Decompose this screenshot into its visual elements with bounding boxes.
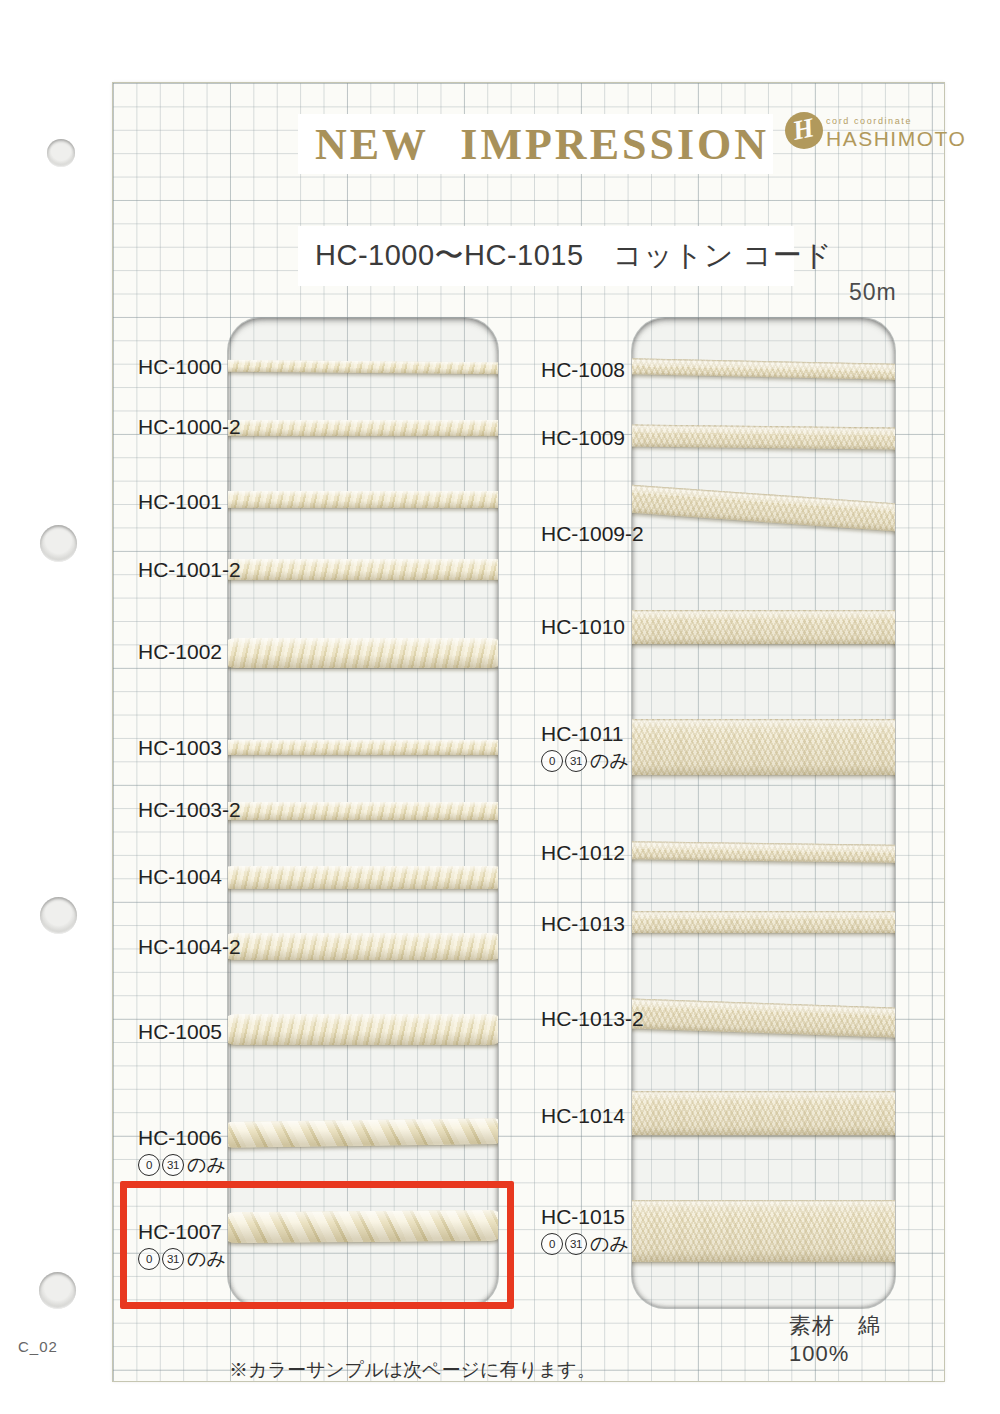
- sample-label-hc-1010: HC-1010: [541, 614, 625, 640]
- sample-id: HC-1005: [138, 1019, 222, 1045]
- page-title: NEW IMPRESSION: [298, 119, 769, 170]
- material-label: 素材 綿 100%: [789, 1311, 944, 1367]
- sample-label-hc-1014: HC-1014: [541, 1103, 625, 1129]
- sample-label-hc-1009: HC-1009: [541, 425, 625, 451]
- sample-id: HC-1013-2: [541, 1006, 644, 1032]
- cord-sample-hc-1014: [631, 1091, 896, 1135]
- cord-sample-hc-1000-2: [227, 420, 499, 436]
- sample-label-hc-1013-2: HC-1013-2: [541, 1006, 644, 1032]
- sample-label-hc-1011: HC-1011031のみ: [541, 721, 629, 774]
- sample-id: HC-1003-2: [138, 797, 241, 823]
- cord-sample-hc-1013: [631, 911, 896, 933]
- circled-number: 31: [162, 1154, 184, 1176]
- cord-sample-hc-1000: [227, 360, 499, 374]
- cord-sample-hc-1001-2: [227, 559, 499, 580]
- logo-company: HASHIMOTO: [826, 127, 966, 151]
- cord-sample-hc-1002: [227, 638, 499, 668]
- cord-sample-hc-1001: [227, 491, 499, 508]
- cord-sample-hc-1011: [631, 719, 896, 775]
- cord-sample-hc-1008: [631, 358, 896, 380]
- sample-id: HC-1002: [138, 639, 222, 665]
- color-availability-note: 031のみ: [138, 1152, 226, 1178]
- circled-number: 0: [541, 750, 563, 772]
- sample-id: HC-1012: [541, 840, 625, 866]
- sample-id: HC-1000-2: [138, 414, 241, 440]
- sample-id: HC-1000: [138, 354, 222, 380]
- cord-sample-hc-1005: [227, 1014, 499, 1045]
- sample-id: HC-1004-2: [138, 934, 241, 960]
- cord-sample-hc-1015: [631, 1200, 896, 1262]
- highlight-box: [120, 1181, 514, 1309]
- sample-id: HC-1008: [541, 357, 625, 383]
- cord-sample-hc-1009-2: [631, 484, 896, 531]
- subtitle-band: HC-1000〜HC-1015 コットン コード: [298, 226, 794, 286]
- sample-id: HC-1010: [541, 614, 625, 640]
- cord-sample-hc-1004: [227, 866, 499, 889]
- circled-number: 31: [565, 1233, 587, 1255]
- length-label: 50m: [849, 279, 897, 306]
- sample-id: HC-1001: [138, 489, 222, 515]
- sample-id: HC-1006: [138, 1125, 226, 1151]
- scanned-catalog-page: { "page": { "code": "C_02", "footnote": …: [0, 0, 1000, 1414]
- sample-label-hc-1015: HC-1015031のみ: [541, 1204, 629, 1257]
- sample-label-hc-1005: HC-1005: [138, 1019, 222, 1045]
- sample-label-hc-1008: HC-1008: [541, 357, 625, 383]
- cord-sample-hc-1010: [631, 610, 896, 644]
- page-code: C_02: [18, 1338, 58, 1355]
- logo-monogram-icon: H: [785, 112, 823, 149]
- sample-label-hc-1001: HC-1001: [138, 489, 222, 515]
- punch-hole: [47, 139, 75, 167]
- cord-sample-hc-1003: [227, 740, 499, 755]
- sample-window-right: [631, 317, 896, 1309]
- sample-label-hc-1009-2: HC-1009-2: [541, 521, 644, 547]
- punch-hole: [40, 525, 77, 562]
- sample-id: HC-1001-2: [138, 557, 241, 583]
- cord-sample-hc-1013-2: [631, 998, 896, 1038]
- hashimoto-logo: H cord coordinate HASHIMOTO: [785, 112, 966, 151]
- punch-hole: [40, 897, 77, 934]
- sample-label-hc-1012: HC-1012: [541, 840, 625, 866]
- subtitle: HC-1000〜HC-1015 コットン コード: [298, 236, 832, 276]
- cord-sample-hc-1012: [631, 841, 896, 863]
- sheet: NEW IMPRESSION H cord coordinate HASHIMO…: [112, 82, 945, 1382]
- sample-id: HC-1009: [541, 425, 625, 451]
- sample-id: HC-1013: [541, 911, 625, 937]
- color-availability-note: 031のみ: [541, 748, 629, 774]
- note-suffix: のみ: [590, 748, 629, 774]
- sample-window-left: [227, 317, 499, 1309]
- sample-label-hc-1000: HC-1000: [138, 354, 222, 380]
- cord-sample-hc-1009: [631, 424, 896, 449]
- logo-text: cord coordinate HASHIMOTO: [826, 116, 966, 151]
- sample-label-hc-1003-2: HC-1003-2: [138, 797, 241, 823]
- sample-id: HC-1011: [541, 721, 629, 747]
- color-availability-note: 031のみ: [541, 1231, 629, 1257]
- sample-label-hc-1004-2: HC-1004-2: [138, 934, 241, 960]
- cord-sample-hc-1003-2: [227, 802, 499, 820]
- sample-label-hc-1001-2: HC-1001-2: [138, 557, 241, 583]
- cord-sample-hc-1006: [227, 1118, 499, 1148]
- sample-label-hc-1003: HC-1003: [138, 735, 222, 761]
- sample-label-hc-1006: HC-1006031のみ: [138, 1125, 226, 1178]
- note-suffix: のみ: [590, 1231, 629, 1257]
- sample-label-hc-1013: HC-1013: [541, 911, 625, 937]
- circled-number: 0: [541, 1233, 563, 1255]
- note-suffix: のみ: [187, 1152, 226, 1178]
- circled-number: 0: [138, 1154, 160, 1176]
- punch-hole: [39, 1272, 76, 1309]
- sample-id: HC-1014: [541, 1103, 625, 1129]
- sample-label-hc-1002: HC-1002: [138, 639, 222, 665]
- sample-id: HC-1015: [541, 1204, 629, 1230]
- cord-sample-hc-1004-2: [227, 933, 499, 960]
- footnote: ※カラーサンプルは次ページに有ります。: [229, 1357, 596, 1383]
- logo-tagline: cord coordinate: [826, 116, 966, 126]
- sample-id: HC-1003: [138, 735, 222, 761]
- sample-id: HC-1004: [138, 864, 222, 890]
- circled-number: 31: [565, 750, 587, 772]
- sample-label-hc-1004: HC-1004: [138, 864, 222, 890]
- sample-id: HC-1009-2: [541, 521, 644, 547]
- title-band: NEW IMPRESSION: [298, 114, 773, 174]
- sample-label-hc-1000-2: HC-1000-2: [138, 414, 241, 440]
